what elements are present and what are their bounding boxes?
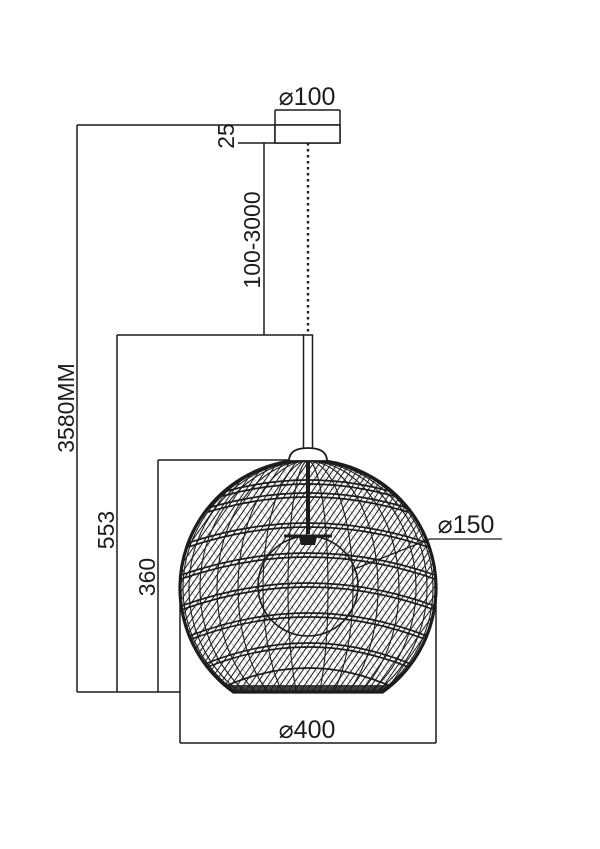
- drawing-canvas: ⌀100 25 100-3000 3580MM 553 360 ⌀150 ⌀40…: [0, 0, 600, 849]
- stem-rod: [304, 335, 313, 453]
- canopy-diameter-label: ⌀100: [279, 83, 336, 111]
- suspension-length-label: 100-3000: [239, 191, 265, 288]
- shade-height-label: 360: [134, 558, 160, 596]
- ceiling-canopy: [275, 125, 340, 143]
- socket-stem: [299, 537, 317, 545]
- pendant-lamp-dimension-drawing: ⌀100 25 100-3000 3580MM 553 360 ⌀150 ⌀40…: [0, 0, 600, 849]
- shade-top-cap: [289, 448, 327, 461]
- canopy-thickness-label: 25: [213, 123, 239, 149]
- fixture-drop-label: 553: [93, 511, 119, 549]
- bulb-diameter-label: ⌀150: [438, 511, 495, 539]
- shade-diameter-label: ⌀400: [279, 716, 336, 744]
- overall-height-label: 3580MM: [53, 363, 79, 452]
